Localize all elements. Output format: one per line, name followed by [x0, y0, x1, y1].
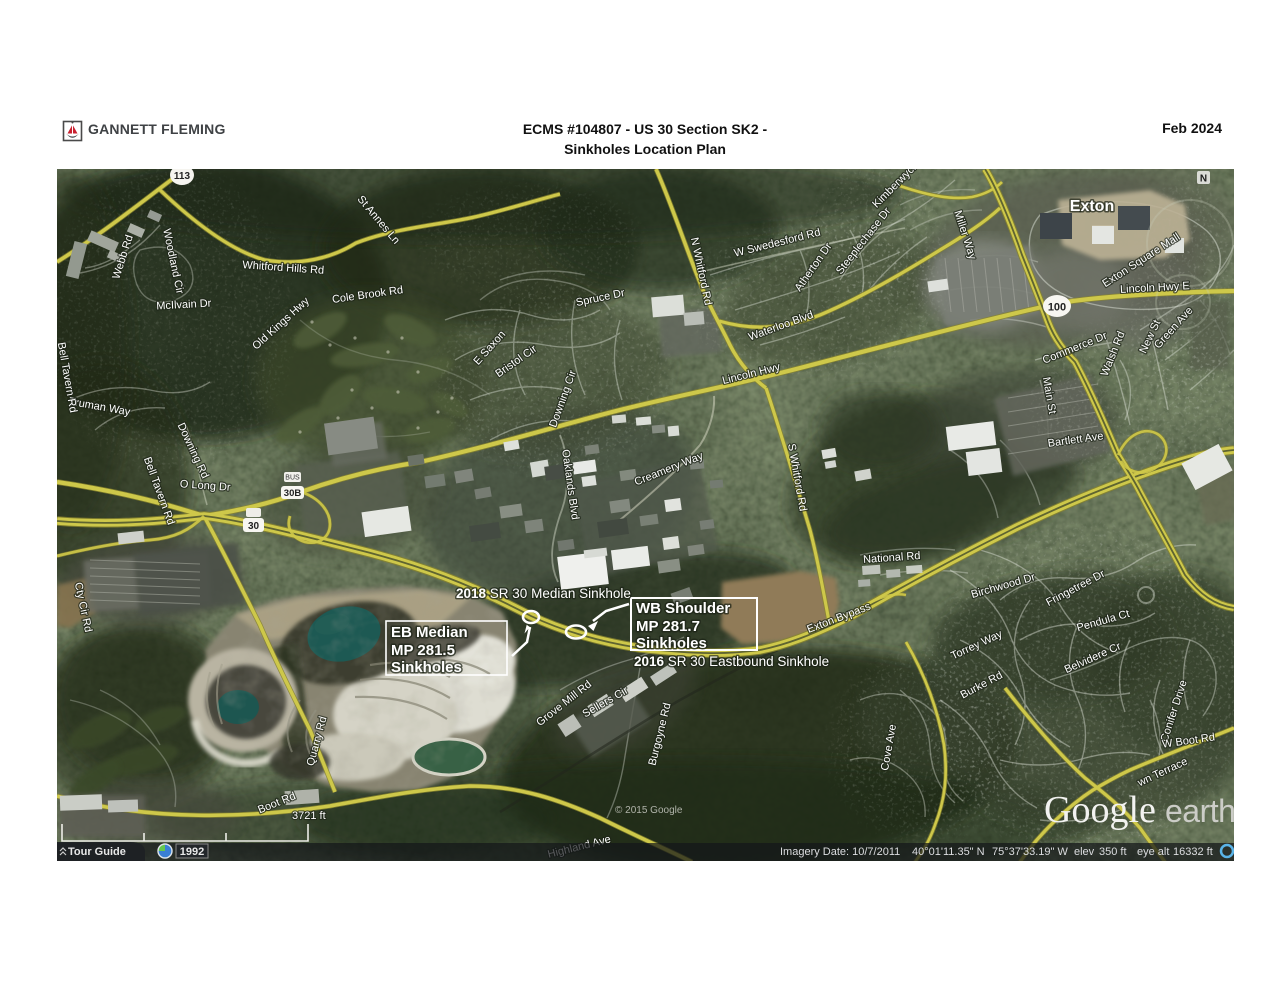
svg-text:3721 ft: 3721 ft — [292, 810, 326, 822]
svg-text:Google: Google — [1044, 789, 1156, 831]
svg-text:elev: elev — [1074, 846, 1095, 858]
svg-text:100: 100 — [1048, 302, 1066, 314]
svg-text:N: N — [1200, 174, 1207, 185]
svg-text:earth: earth — [1165, 793, 1234, 829]
svg-text:WB Shoulder: WB Shoulder — [636, 600, 730, 617]
svg-text:350 ft: 350 ft — [1099, 846, 1127, 858]
svg-text:Exton: Exton — [1070, 198, 1114, 215]
svg-text:30B: 30B — [284, 488, 302, 499]
svg-text:Tour Guide: Tour Guide — [68, 846, 126, 858]
svg-text:© 2015 Google: © 2015 Google — [615, 805, 683, 816]
svg-text:Imagery Date: 10/7/2011: Imagery Date: 10/7/2011 — [780, 846, 900, 858]
svg-text:MP 281.5: MP 281.5 — [391, 642, 455, 659]
svg-text:EB Median: EB Median — [391, 624, 468, 641]
svg-text:16332 ft: 16332 ft — [1173, 846, 1213, 858]
svg-text:1992: 1992 — [180, 846, 204, 858]
svg-text:40°01'11.35" N: 40°01'11.35" N — [912, 846, 985, 858]
svg-text:Sinkholes: Sinkholes — [391, 659, 462, 676]
svg-text:MP 281.7: MP 281.7 — [636, 618, 700, 635]
svg-text:2018 SR 30 Median Sinkhole: 2018 SR 30 Median Sinkhole — [456, 586, 631, 601]
svg-text:eye alt: eye alt — [1137, 846, 1169, 858]
svg-text:BUS: BUS — [285, 475, 300, 482]
svg-text:30: 30 — [248, 521, 260, 532]
svg-text:2016 SR 30 Eastbound Sinkhole: 2016 SR 30 Eastbound Sinkhole — [634, 654, 829, 669]
svg-text:113: 113 — [174, 171, 191, 182]
svg-text:Sinkholes: Sinkholes — [636, 635, 707, 652]
svg-text:75°37'33.19" W: 75°37'33.19" W — [992, 846, 1068, 858]
